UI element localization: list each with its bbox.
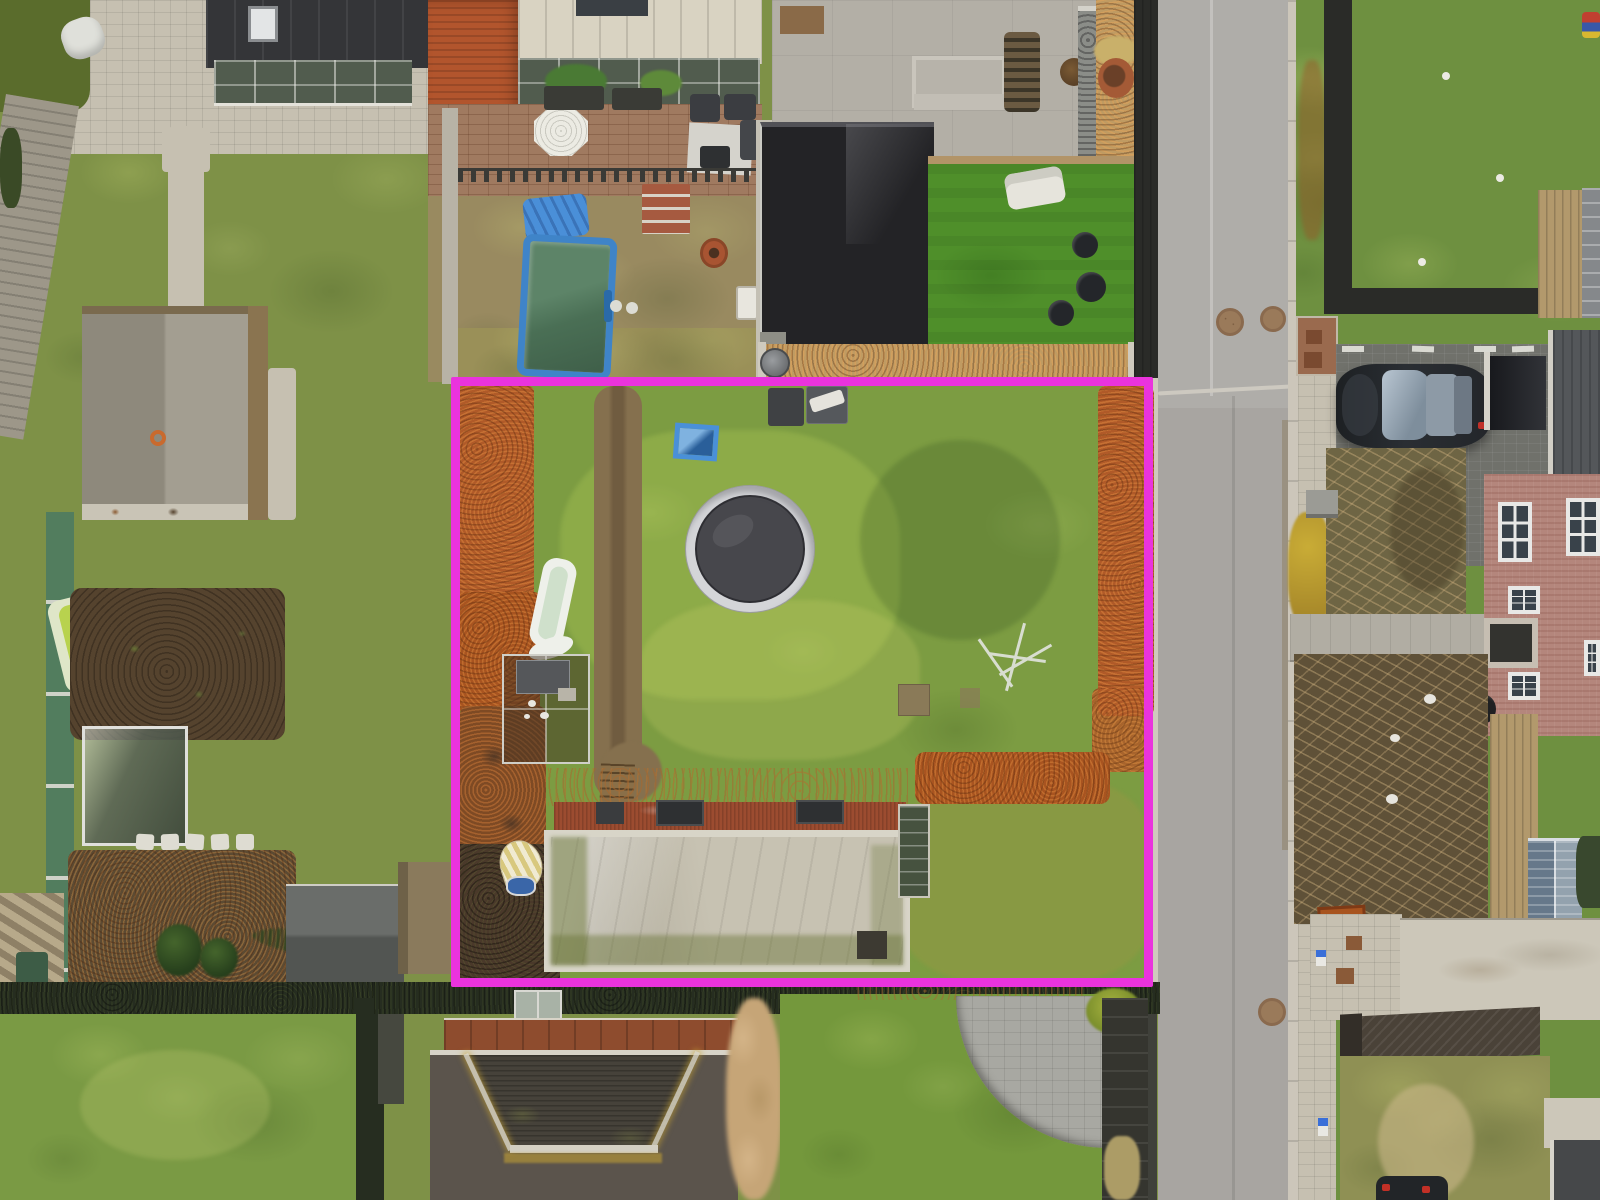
path-beside-shed [268,368,296,520]
greenhouse [82,726,188,846]
terracotta-pot-right [1098,58,1134,98]
left-conservatory-roof [214,60,412,106]
dark-planter [544,86,604,110]
lounge-chair-dark-2 [724,94,756,120]
leaf-litter-verge [1298,60,1326,240]
left-house-roof [206,0,432,68]
round-bush [156,924,202,976]
manhole-cover-3 [1258,998,1286,1026]
stone [136,834,155,851]
house-window-3 [1508,586,1540,614]
cold-frame [514,990,562,1020]
timber-structure-topright [1538,190,1584,318]
dark-fence-L-vertical [1324,0,1352,298]
shed-side-wall [248,306,268,520]
stone [236,834,254,850]
rust-lower-roof [444,1018,738,1054]
dark-skylight [576,0,648,16]
manhole-cover-2 [1260,306,1286,332]
car-rear-window [1454,376,1472,434]
white-garden-ornament [1424,694,1436,704]
terracotta-pot [700,238,728,268]
gabion-pillar [1078,6,1098,162]
utility-box [1306,490,1338,518]
flat-roof-water-stain [846,124,934,244]
small-wood-shed [398,862,450,974]
white-garden-ornament-2 [1390,734,1400,742]
planter-pot-dark-2 [1076,272,1106,302]
house-window-2 [1566,498,1600,556]
lounge-chair-dark [690,94,720,122]
concrete-bench [914,94,1004,110]
orange-ring-toy [150,430,166,446]
round-bush-small [200,938,238,978]
tan-grass-clump [1104,1136,1140,1200]
house-window-5 [1584,640,1600,676]
fence-post-strip [1282,420,1288,850]
small-paver-drive [1310,914,1402,1020]
road-seam [1210,0,1213,396]
house-window [1498,502,1532,562]
retaining-wall-railing [445,168,758,182]
car-bottom-taillight-2 [1422,1186,1430,1193]
dark-roof-band-cap [1340,1013,1362,1060]
metal-roof-shed [1528,838,1582,920]
car-windshield [1382,370,1430,440]
dark-hedge-horizontal [0,982,374,1014]
survey-marker-2 [1318,1118,1328,1136]
colorful-toy [1582,12,1600,38]
garage-white-pillar [1484,352,1490,430]
pampas-grass [726,998,782,1200]
roof-ridge-bar [510,1145,658,1153]
above-ground-pool [516,234,617,381]
left-house-skylight [248,6,278,42]
survey-marker [1316,950,1326,966]
garage-opening-shadow [1488,356,1546,430]
white-garden-ornament-3 [1386,794,1398,804]
wooden-shed-roof [82,306,248,520]
left-garden-path [168,126,204,322]
parking-stop-2 [1412,346,1434,353]
car-bottom-taillight [1382,1184,1390,1191]
stone [211,834,230,851]
brick-inset [1306,330,1322,344]
golf-ball-dot [1442,72,1450,80]
road-seam-2 [1232,396,1235,1200]
worn-lawn-patch [80,1050,270,1160]
brown-paver-inset [1346,936,1362,950]
bare-shrub-mass [1390,468,1464,592]
parked-car [1336,364,1490,448]
concrete-driveway-band [1400,918,1600,1020]
coffee-table-dark [700,146,730,168]
bottom-right-building-wall [1550,1140,1600,1200]
golf-ball-dot-2 [1496,174,1504,182]
dark-garden-structure [378,1000,404,1104]
parking-stop-4 [1512,346,1534,353]
gray-barrel [760,348,790,378]
brick-steps [642,184,690,234]
left-boundary-wall [442,108,458,384]
lower-garden-bed [1294,654,1488,924]
lichen-band [504,1153,662,1163]
wooden-cabinet [780,6,824,34]
aerial-photo [0,0,1600,1200]
gray-shed [286,884,404,986]
brown-paver-inset-2 [1336,968,1354,984]
dark-edge-left-of-road [1148,986,1157,1200]
car-hood-highlight [1342,374,1378,436]
corrugated-outbuilding [1548,330,1600,482]
hip-roof-house [430,1050,738,1200]
planter-pot-dark [1072,232,1098,258]
dark-boundary-fence-road [1134,0,1160,384]
golf-ball-dot-3 [1418,258,1426,266]
orange-tile-roof [428,0,524,118]
car-at-bottom-edge [1376,1176,1448,1200]
dark-hedge-corner [1576,836,1600,908]
plot-boundary-outline [451,377,1153,987]
stone [161,834,180,851]
white-ball [610,300,622,312]
white-storage-box [736,286,758,320]
white-ball-2 [626,302,638,314]
entrance-porch [1484,618,1538,668]
planter-pot-dark-3 [1048,300,1074,326]
house-window-4 [1508,672,1540,700]
road-light-section [1158,0,1290,408]
dark-shrub-left-edge [0,128,22,208]
gray-panel-roof-topright [1582,188,1600,318]
slatted-lounger [1004,32,1040,112]
dark-planter-2 [612,88,662,110]
parking-stop [1342,346,1364,352]
manhole-cover [1216,308,1244,336]
shed-eave-clutter [82,504,248,520]
stone [185,833,204,850]
dark-fence-L-horizontal [1324,288,1564,314]
vegetable-patch [70,588,285,740]
brick-inset-2 [1304,352,1322,368]
